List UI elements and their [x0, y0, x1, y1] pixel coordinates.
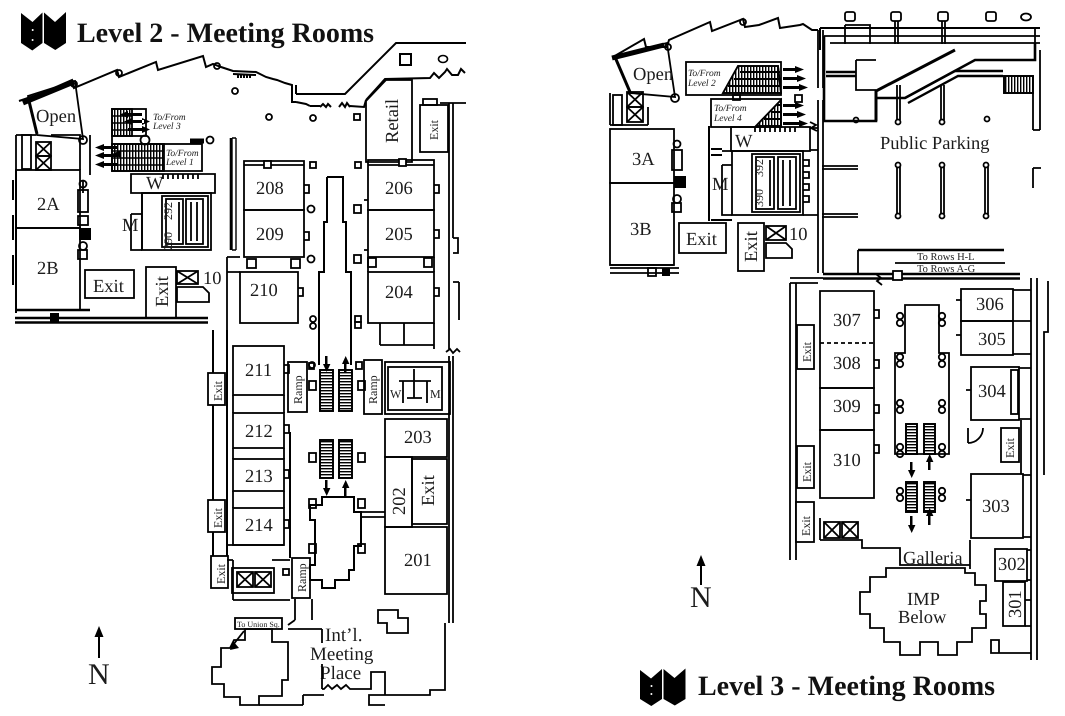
svg-text:IMP: IMP	[907, 590, 940, 610]
svg-text:To Union Sq.: To Union Sq.	[237, 620, 280, 629]
svg-text:Level 4: Level 4	[713, 114, 742, 124]
svg-text:Exit: Exit	[742, 230, 762, 262]
svg-text:306: 306	[976, 295, 1004, 315]
svg-text:209: 209	[256, 225, 284, 245]
svg-text:Exit: Exit	[153, 275, 173, 307]
svg-text:292: 292	[161, 202, 175, 220]
svg-text:W: W	[735, 132, 753, 152]
svg-text:Ramp: Ramp	[295, 563, 309, 592]
svg-text:N: N	[88, 658, 110, 691]
svg-text:212: 212	[245, 422, 273, 442]
svg-text:To Rows H-L: To Rows H-L	[917, 252, 975, 263]
svg-text:305: 305	[978, 330, 1006, 350]
svg-text:310: 310	[833, 451, 861, 471]
svg-text:201: 201	[404, 551, 432, 571]
svg-text:Level 3 - Meeting Rooms: Level 3 - Meeting Rooms	[698, 671, 995, 702]
svg-text:Level 2 - Meeting Rooms: Level 2 - Meeting Rooms	[77, 18, 374, 49]
svg-text:3B: 3B	[630, 220, 652, 240]
svg-text:Open: Open	[633, 65, 673, 85]
svg-text:392: 392	[752, 159, 766, 177]
svg-text:Ramp: Ramp	[366, 375, 380, 404]
svg-text:308: 308	[833, 354, 861, 374]
svg-text:Exit: Exit	[800, 341, 814, 362]
svg-text:213: 213	[245, 467, 273, 487]
svg-text:Exit: Exit	[427, 119, 441, 140]
svg-text:3A: 3A	[632, 150, 655, 170]
svg-text:Below: Below	[898, 608, 947, 628]
svg-text:To/From: To/From	[714, 104, 747, 114]
svg-text:Exit: Exit	[799, 515, 813, 536]
svg-text:Galleria: Galleria	[903, 549, 963, 569]
svg-text:Retail: Retail	[383, 99, 403, 143]
svg-text:208: 208	[256, 179, 284, 199]
svg-text:204: 204	[385, 283, 413, 303]
svg-text:211: 211	[245, 361, 272, 381]
svg-text:205: 205	[385, 225, 413, 245]
svg-text:303: 303	[982, 497, 1010, 517]
svg-text:W: W	[390, 387, 402, 401]
svg-text:214: 214	[245, 516, 273, 536]
svg-text:309: 309	[833, 397, 861, 417]
svg-text:N: N	[690, 581, 712, 614]
svg-text:Meeting: Meeting	[310, 644, 374, 665]
svg-text:Open: Open	[36, 107, 76, 127]
svg-text:To/From: To/From	[688, 69, 721, 79]
svg-text:Level 1: Level 1	[165, 158, 194, 168]
svg-text:Exit: Exit	[214, 563, 228, 584]
svg-text:Exit: Exit	[211, 380, 225, 401]
svg-text:Public Parking: Public Parking	[880, 134, 989, 154]
svg-text:390: 390	[752, 189, 766, 207]
svg-text:290: 290	[161, 232, 175, 250]
svg-text:M: M	[712, 175, 728, 195]
svg-text:Exit: Exit	[211, 507, 225, 528]
svg-text:301: 301	[1006, 590, 1026, 618]
svg-text:203: 203	[404, 428, 432, 448]
svg-text:307: 307	[833, 311, 861, 331]
svg-text:Ramp: Ramp	[291, 375, 305, 404]
svg-text:202: 202	[390, 487, 410, 515]
svg-text:304: 304	[978, 382, 1006, 402]
svg-text:Exit: Exit	[1003, 437, 1017, 458]
svg-text:206: 206	[385, 179, 413, 199]
svg-text:M: M	[430, 387, 441, 401]
svg-text:Exit: Exit	[419, 474, 439, 506]
svg-text:Exit: Exit	[800, 461, 814, 482]
svg-text:Exit: Exit	[686, 230, 718, 250]
svg-text:Place: Place	[320, 663, 361, 684]
svg-text:Level 3: Level 3	[152, 122, 181, 132]
svg-text:2B: 2B	[37, 259, 59, 279]
svg-text:Int’l.: Int’l.	[325, 625, 362, 646]
svg-text:210: 210	[250, 281, 278, 301]
svg-text:302: 302	[998, 555, 1026, 575]
svg-text:Level 2: Level 2	[687, 79, 716, 89]
svg-text:W: W	[146, 174, 164, 194]
svg-text:2A: 2A	[37, 195, 60, 215]
svg-text:Exit: Exit	[93, 277, 125, 297]
svg-text:10: 10	[203, 269, 222, 289]
svg-text:10: 10	[789, 225, 808, 245]
